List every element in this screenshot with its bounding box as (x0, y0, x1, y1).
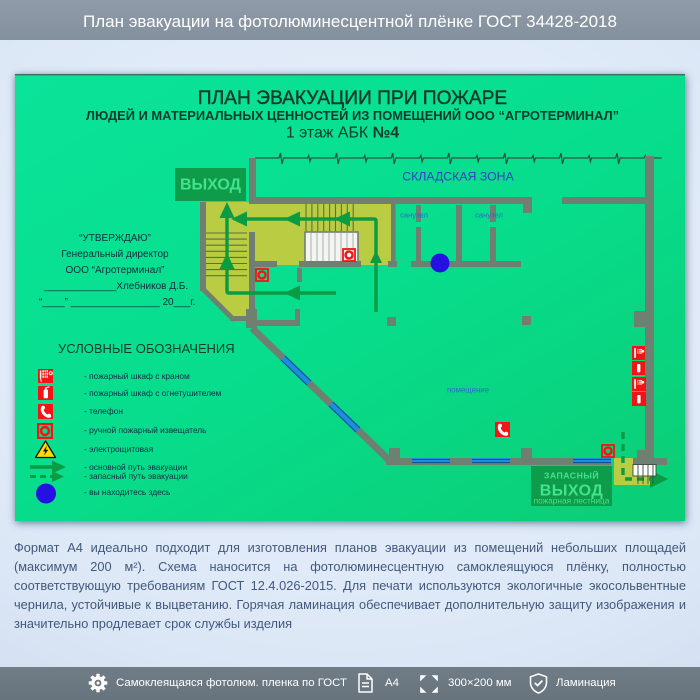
svg-text:УСЛОВНЫЕ ОБОЗНАЧЕНИЯ: УСЛОВНЫЕ ОБОЗНАЧЕНИЯ (58, 341, 235, 356)
svg-text:ЗАПАСНЫЙ: ЗАПАСНЫЙ (544, 470, 599, 481)
svg-text:- телефон: - телефон (84, 406, 123, 416)
svg-text:1 этаж АБК №4: 1 этаж АБК №4 (286, 125, 399, 142)
svg-text:- ручной пожарный извещатель: - ручной пожарный извещатель (84, 425, 207, 435)
svg-text:- пожарный шкаф с краном: - пожарный шкаф с краном (84, 371, 190, 381)
svg-text:пожарная лестница: пожарная лестница (534, 496, 610, 506)
svg-text:_____________Хлебников Д.Б.: _____________Хлебников Д.Б. (43, 280, 188, 292)
svg-text:- вы находитесь здесь: - вы находитесь здесь (84, 487, 171, 497)
svg-text:ПЛАН ЭВАКУАЦИИ ПРИ ПОЖАРЕ: ПЛАН ЭВАКУАЦИИ ПРИ ПОЖАРЕ (198, 88, 507, 109)
svg-text:санузел: санузел (400, 211, 428, 220)
svg-text:ВЫХОД: ВЫХОД (180, 177, 242, 194)
svg-text:санузел: санузел (475, 211, 503, 220)
svg-text:- запасный путь эвакуации: - запасный путь эвакуации (84, 471, 188, 481)
svg-text:“____” ________________ 20___г: “____” ________________ 20___г. (39, 297, 195, 308)
svg-text:ООО “Агротерминал”: ООО “Агротерминал” (66, 265, 165, 276)
svg-text:- электрощитовая: - электрощитовая (84, 444, 153, 454)
svg-text:Генеральный директор: Генеральный директор (61, 249, 169, 260)
svg-text:“УТВЕРЖДАЮ”: “УТВЕРЖДАЮ” (79, 233, 151, 244)
svg-text:ЛЮДЕЙ И МАТЕРИАЛЬНЫХ ЦЕННОСТЕЙ: ЛЮДЕЙ И МАТЕРИАЛЬНЫХ ЦЕННОСТЕЙ ИЗ ПОМЕЩЕ… (86, 108, 619, 123)
svg-text:СКЛАДСКАЯ ЗОНА: СКЛАДСКАЯ ЗОНА (402, 170, 514, 184)
svg-text:- пожарный шкаф с огнетушителе: - пожарный шкаф с огнетушителем (84, 388, 222, 398)
svg-text:помещение: помещение (447, 386, 489, 395)
